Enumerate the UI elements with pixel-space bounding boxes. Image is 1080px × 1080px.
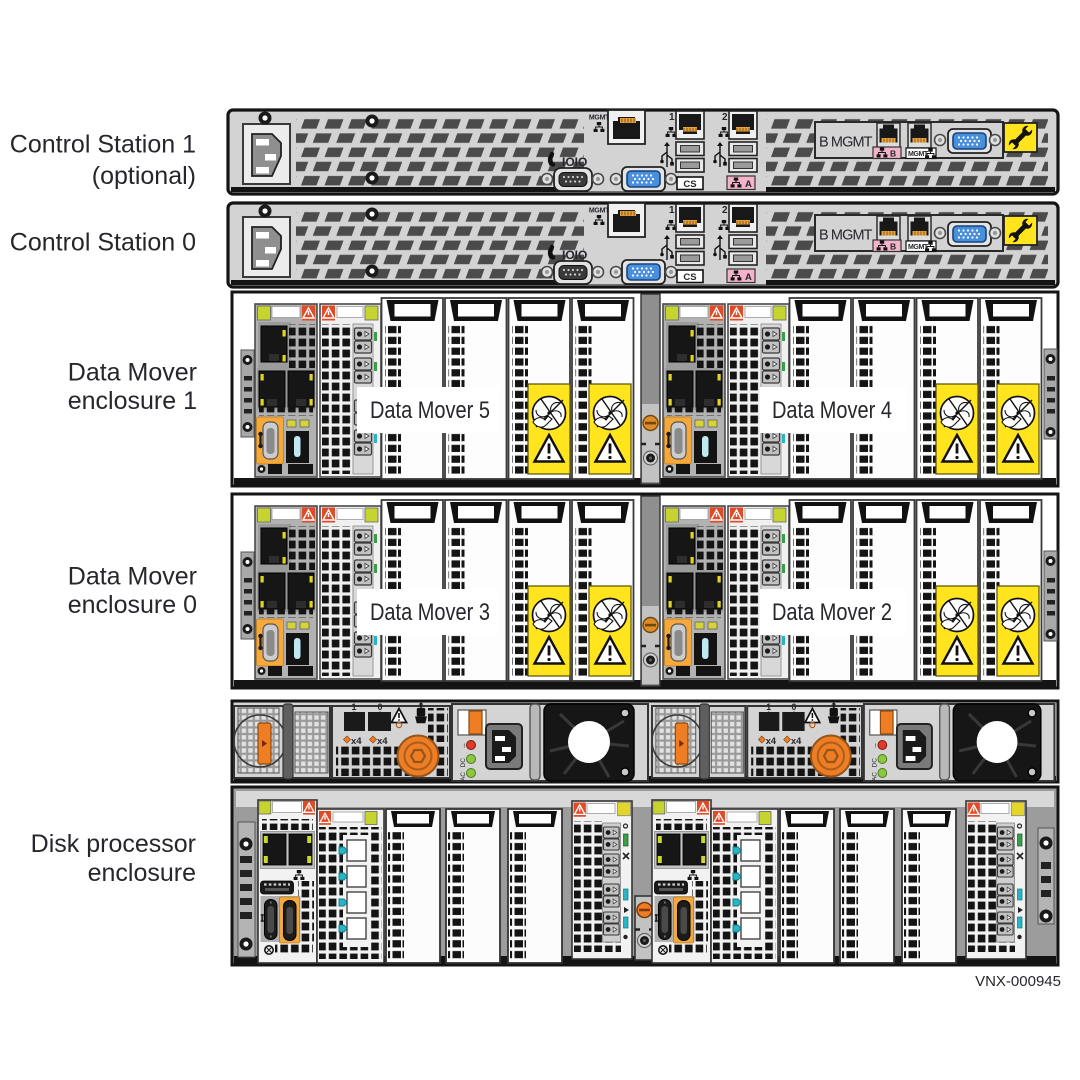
svg-text:enclosure 0: enclosure 0 [68,591,197,619]
svg-text:Data Mover: Data Mover [68,563,197,591]
svg-text:Control Station 0: Control Station 0 [10,229,196,257]
svg-text:Data Mover 4: Data Mover 4 [772,397,892,424]
svg-text:Data Mover: Data Mover [68,359,197,387]
svg-text:enclosure: enclosure [88,859,196,887]
svg-text:enclosure 1: enclosure 1 [68,387,197,415]
svg-text:Disk processor: Disk processor [31,830,196,858]
svg-text:Data Mover 5: Data Mover 5 [370,397,490,424]
svg-text:(optional): (optional) [92,162,196,190]
svg-text:Data Mover 3: Data Mover 3 [370,599,490,626]
svg-text:Data Mover 2: Data Mover 2 [772,599,892,626]
svg-text:Control Station 1: Control Station 1 [10,131,196,159]
svg-text:VNX-000945: VNX-000945 [975,973,1061,990]
